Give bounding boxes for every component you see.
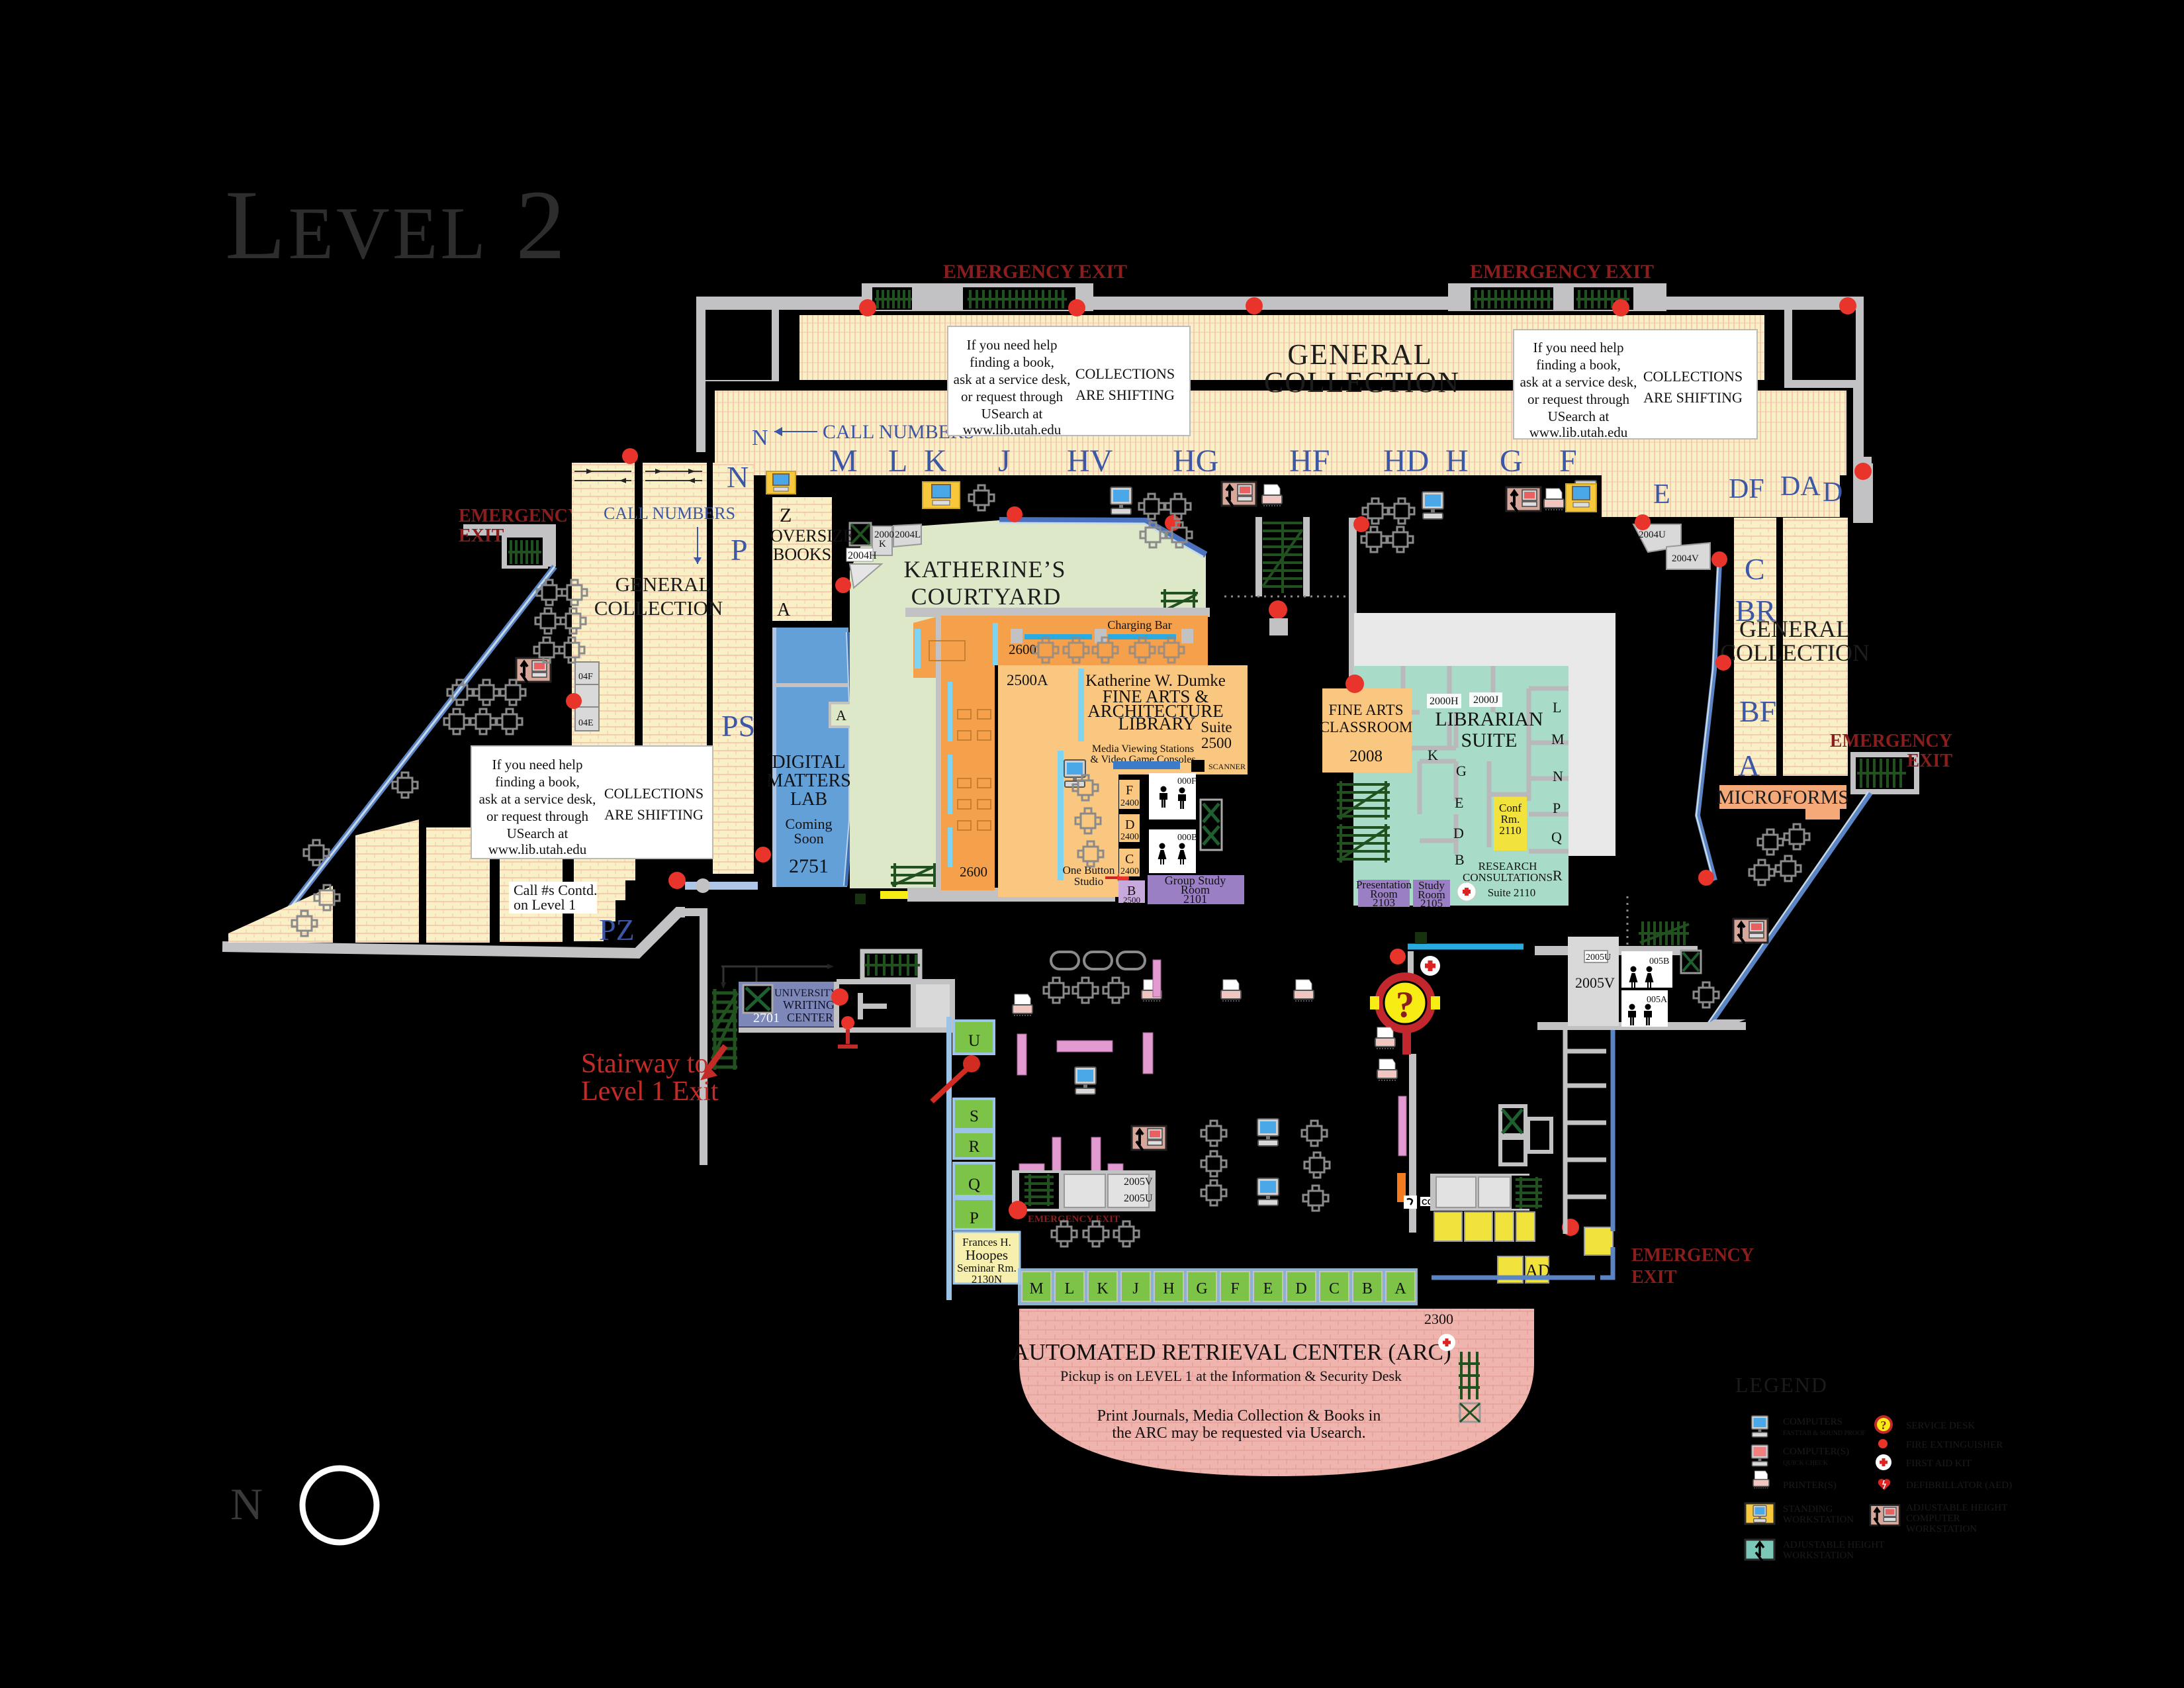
svg-text:A: A [1394, 1280, 1406, 1297]
svg-text:2101: 2101 [1183, 892, 1207, 906]
svg-text:HV: HV [1067, 444, 1113, 479]
svg-text:A: A [836, 707, 846, 724]
svg-text:L: L [1553, 699, 1561, 716]
svg-text:2103: 2103 [1373, 896, 1395, 909]
svg-text:2005U: 2005U [1124, 1193, 1153, 1204]
svg-text:ADJUSTABLE HEIGHT: ADJUSTABLE HEIGHT [1906, 1503, 2007, 1513]
svg-text:COLLECTION: COLLECTION [1720, 639, 1870, 666]
svg-text:2400: 2400 [1120, 867, 1139, 876]
svg-text:2000H: 2000H [1430, 696, 1459, 707]
svg-text:Suite: Suite [1201, 719, 1232, 735]
svg-text:Stairway to: Stairway to [581, 1049, 708, 1079]
svg-text:SERVICE DESK: SERVICE DESK [1906, 1421, 1975, 1431]
svg-text:EMERGENCY EXIT: EMERGENCY EXIT [943, 261, 1127, 283]
svg-text:C: C [1745, 552, 1765, 586]
svg-text:2005V: 2005V [1575, 974, 1615, 991]
svg-text:COMPUTERS: COMPUTERS [1783, 1417, 1843, 1427]
svg-text:2500A: 2500A [1007, 672, 1048, 688]
svg-text:Soon: Soon [794, 830, 823, 847]
svg-text:J: J [1132, 1280, 1138, 1297]
svg-text:2701: 2701 [753, 1011, 780, 1025]
svg-text:BOOKS: BOOKS [773, 545, 831, 564]
svg-text:2005U: 2005U [1586, 953, 1611, 962]
svg-text:finding a book,: finding a book, [970, 354, 1054, 370]
svg-text:Level 1 Exit: Level 1 Exit [581, 1076, 719, 1107]
svg-text:B: B [1362, 1280, 1373, 1297]
svg-text:WORKSTATION: WORKSTATION [1783, 1515, 1854, 1525]
svg-text:KATHERINE’S: KATHERINE’S [904, 556, 1066, 583]
svg-text:005A: 005A [1647, 995, 1668, 1005]
svg-text:2004H: 2004H [848, 550, 877, 561]
svg-text:G: G [1500, 444, 1523, 479]
svg-text:CALL NUMBERS: CALL NUMBERS [604, 504, 735, 523]
svg-text:ADJUSTABLE HEIGHT: ADJUSTABLE HEIGHT [1783, 1540, 1884, 1550]
svg-text:EXIT: EXIT [1907, 751, 1953, 771]
svg-text:SUITE: SUITE [1461, 729, 1518, 751]
svg-text:D: D [1125, 818, 1134, 832]
svg-text:DEFIBRILLATOR (AED): DEFIBRILLATOR (AED) [1906, 1480, 2012, 1491]
svg-text:04F: 04F [578, 672, 593, 682]
svg-text:R: R [969, 1138, 980, 1156]
svg-text:FINE ARTS: FINE ARTS [1328, 702, 1403, 718]
svg-text:000F: 000F [1177, 776, 1197, 786]
svg-text:LIBRARY: LIBRARY [1118, 714, 1195, 733]
svg-text:E: E [1263, 1280, 1273, 1297]
svg-text:COLLECTIONS: COLLECTIONS [1643, 368, 1743, 385]
svg-text:K: K [1097, 1280, 1109, 1297]
svg-text:2000J: 2000J [1473, 694, 1498, 706]
svg-text:Hoopes: Hoopes [966, 1247, 1008, 1263]
svg-text:CONSULTATIONS: CONSULTATIONS [1463, 871, 1553, 884]
svg-text:If you need help: If you need help [1533, 340, 1623, 355]
svg-text:A: A [777, 600, 791, 620]
svg-text:K: K [924, 444, 947, 479]
svg-text:BF: BF [1739, 694, 1776, 728]
svg-text:2004L: 2004L [895, 530, 921, 540]
svg-text:FIRST AID KIT: FIRST AID KIT [1906, 1458, 1972, 1469]
svg-text:MATTERS: MATTERS [766, 771, 851, 791]
svg-text:ask at a service desk,: ask at a service desk, [1520, 374, 1637, 390]
svg-text:P: P [1553, 800, 1561, 816]
svg-text:GENERAL: GENERAL [615, 573, 711, 596]
svg-text:HD: HD [1383, 444, 1429, 479]
svg-text:DF: DF [1729, 474, 1764, 504]
svg-text:D: D [1453, 825, 1464, 841]
svg-text:2004V: 2004V [1672, 553, 1699, 564]
svg-text:005B: 005B [1649, 957, 1669, 966]
svg-text:MICROFORMS: MICROFORMS [1717, 786, 1849, 808]
svg-text:D: D [1823, 477, 1843, 508]
svg-text:?: ? [1396, 984, 1414, 1025]
svg-text:EXIT: EXIT [459, 526, 504, 546]
svg-text:2400: 2400 [1120, 798, 1139, 808]
svg-text:2500: 2500 [1123, 895, 1140, 905]
svg-text:PS: PS [721, 709, 755, 743]
svg-text:P: P [731, 533, 748, 567]
svg-text:2110: 2110 [1499, 824, 1521, 837]
svg-text:USearch at: USearch at [507, 825, 569, 841]
svg-text:finding a book,: finding a book, [1536, 357, 1621, 373]
svg-text:C: C [1329, 1280, 1340, 1297]
svg-text:EMERGENCY: EMERGENCY [1830, 731, 1952, 751]
svg-text:USearch at: USearch at [981, 406, 1043, 422]
svg-text:Pickup is on LEVEL 1 at the In: Pickup is on LEVEL 1 at the Information … [1060, 1368, 1402, 1384]
svg-text:A: A [1738, 749, 1760, 782]
svg-text:Print Journals, Media Collecti: Print Journals, Media Collection & Books… [1097, 1407, 1381, 1425]
svg-text:?: ? [1881, 1419, 1887, 1432]
svg-text:F: F [1126, 783, 1133, 798]
svg-text:H: H [1163, 1280, 1174, 1297]
svg-text:2130N: 2130N [972, 1273, 1002, 1286]
svg-text:If you need help: If you need help [492, 757, 582, 773]
svg-text:N: N [1553, 768, 1563, 784]
svg-text:N: N [230, 1479, 263, 1529]
svg-text:M: M [1029, 1280, 1043, 1297]
svg-text:DIGITAL: DIGITAL [772, 752, 845, 773]
svg-text:Studio: Studio [1074, 875, 1103, 888]
svg-text:LEGEND: LEGEND [1735, 1373, 1828, 1397]
svg-text:EMERGENCY EXIT: EMERGENCY EXIT [1028, 1214, 1120, 1225]
svg-text:EMERGENCY: EMERGENCY [1631, 1245, 1754, 1266]
svg-text:04E: 04E [578, 718, 594, 728]
svg-text:Charging Bar: Charging Bar [1107, 618, 1171, 632]
svg-text:CLASSROOM: CLASSROOM [1320, 719, 1413, 735]
svg-text:C: C [1125, 852, 1134, 867]
svg-text:UNIVERSITY: UNIVERSITY [774, 988, 838, 999]
svg-text:COLLECTIONS: COLLECTIONS [604, 785, 704, 802]
svg-text:COLLECTION: COLLECTION [1264, 366, 1460, 399]
svg-text:HG: HG [1173, 444, 1218, 479]
svg-text:ARE SHIFTING: ARE SHIFTING [604, 806, 704, 823]
svg-text:WORKSTATION: WORKSTATION [1906, 1524, 1977, 1534]
svg-text:2751: 2751 [789, 855, 829, 877]
svg-text:HF: HF [1289, 444, 1330, 479]
svg-text:D: D [1295, 1280, 1306, 1297]
svg-text:COMPUTER: COMPUTER [1906, 1513, 1960, 1524]
svg-text:or request through: or request through [961, 389, 1063, 404]
svg-text:www.lib.utah.edu: www.lib.utah.edu [1529, 424, 1628, 440]
svg-text:LIBRARIAN: LIBRARIAN [1435, 708, 1543, 730]
svg-text:WORKSTATION: WORKSTATION [1783, 1550, 1854, 1561]
svg-text:S: S [970, 1107, 979, 1125]
svg-text:Q: Q [968, 1176, 980, 1194]
svg-text:EXIT: EXIT [1631, 1267, 1677, 1288]
svg-text:2008: 2008 [1349, 747, 1383, 765]
svg-text:Q: Q [1551, 829, 1562, 845]
svg-text:E: E [1653, 479, 1670, 510]
svg-text:2400: 2400 [1120, 832, 1139, 842]
svg-text:FIRE EXTINGUISHER: FIRE EXTINGUISHER [1906, 1440, 2003, 1450]
svg-text:2004U: 2004U [1639, 530, 1666, 540]
svg-text:QUICK CHECK: QUICK CHECK [1783, 1460, 1829, 1467]
svg-text:COURTYARD: COURTYARD [911, 583, 1062, 610]
svg-text:PZ: PZ [599, 913, 635, 947]
svg-text:or request through: or request through [486, 808, 588, 824]
svg-text:OVERSIZE: OVERSIZE [770, 526, 854, 545]
svg-text:Media Viewing Stations: Media Viewing Stations [1092, 743, 1194, 755]
svg-text:www.lib.utah.edu: www.lib.utah.edu [963, 422, 1062, 438]
svg-text:PRINTER(S): PRINTER(S) [1783, 1480, 1837, 1491]
svg-text:www.lib.utah.edu: www.lib.utah.edu [488, 841, 587, 857]
svg-text:M: M [1551, 731, 1565, 747]
svg-text:E: E [1455, 794, 1463, 811]
svg-text:J: J [998, 444, 1011, 479]
svg-text:N: N [727, 460, 749, 494]
svg-text:FASTTAB & SOUND PROOF: FASTTAB & SOUND PROOF [1783, 1430, 1866, 1437]
svg-text:H: H [1445, 444, 1469, 479]
svg-text:F: F [1230, 1280, 1239, 1297]
svg-text:F: F [1559, 444, 1577, 479]
svg-text:If you need help: If you need help [966, 337, 1057, 353]
svg-text:DA: DA [1780, 471, 1821, 502]
svg-text:GENERAL: GENERAL [1739, 616, 1850, 642]
svg-text:2600: 2600 [960, 864, 987, 880]
svg-text:USearch at: USearch at [1548, 408, 1610, 424]
svg-text:EMERGENCY: EMERGENCY [459, 506, 581, 526]
svg-text:L: L [888, 444, 907, 479]
svg-text:Suite 2110: Suite 2110 [1488, 886, 1536, 899]
svg-text:K: K [1428, 747, 1438, 763]
svg-text:G: G [1196, 1280, 1207, 1297]
svg-text:U: U [968, 1032, 980, 1050]
svg-text:2105: 2105 [1420, 897, 1443, 910]
svg-text:ARE SHIFTING: ARE SHIFTING [1643, 389, 1743, 406]
svg-text:2300: 2300 [1424, 1311, 1453, 1327]
svg-text:on Level 1: on Level 1 [514, 896, 576, 913]
svg-text:Z: Z [780, 504, 792, 526]
svg-text:2500: 2500 [1201, 735, 1232, 751]
svg-text:EMERGENCY EXIT: EMERGENCY EXIT [1470, 261, 1654, 283]
svg-text:M: M [829, 444, 858, 479]
svg-text:or request through: or request through [1527, 391, 1629, 407]
svg-text:COLLECTIONS: COLLECTIONS [1075, 365, 1175, 382]
svg-text:LAB: LAB [790, 789, 827, 810]
svg-text:N: N [752, 426, 768, 450]
svg-text:P: P [970, 1209, 979, 1227]
svg-text:000B: 000B [1177, 833, 1197, 843]
svg-text:2005V: 2005V [1124, 1176, 1153, 1188]
svg-text:COLLECTION: COLLECTION [594, 596, 723, 620]
svg-text:G: G [1456, 763, 1467, 779]
svg-text:WRITING: WRITING [783, 998, 835, 1011]
svg-text:ARE SHIFTING: ARE SHIFTING [1075, 387, 1175, 403]
svg-text:B: B [1455, 851, 1465, 868]
svg-text:R: R [1553, 867, 1563, 884]
svg-text:SCANNER: SCANNER [1208, 762, 1246, 771]
svg-text:ask at a service desk,: ask at a service desk, [479, 791, 596, 807]
svg-text:AUTOMATED RETRIEVAL CENTER (AR: AUTOMATED RETRIEVAL CENTER (ARC) [1012, 1339, 1451, 1365]
svg-text:ask at a service desk,: ask at a service desk, [954, 371, 1071, 387]
svg-text:CENTER: CENTER [787, 1011, 833, 1024]
svg-text:the ARC may be requested via U: the ARC may be requested via Usearch. [1112, 1425, 1365, 1442]
svg-text:finding a book,: finding a book, [495, 774, 580, 790]
svg-text:COMPUTER(S): COMPUTER(S) [1783, 1446, 1849, 1457]
svg-text:STANDING: STANDING [1783, 1504, 1833, 1515]
svg-text:L: L [1065, 1280, 1075, 1297]
svg-text:K: K [879, 539, 886, 549]
